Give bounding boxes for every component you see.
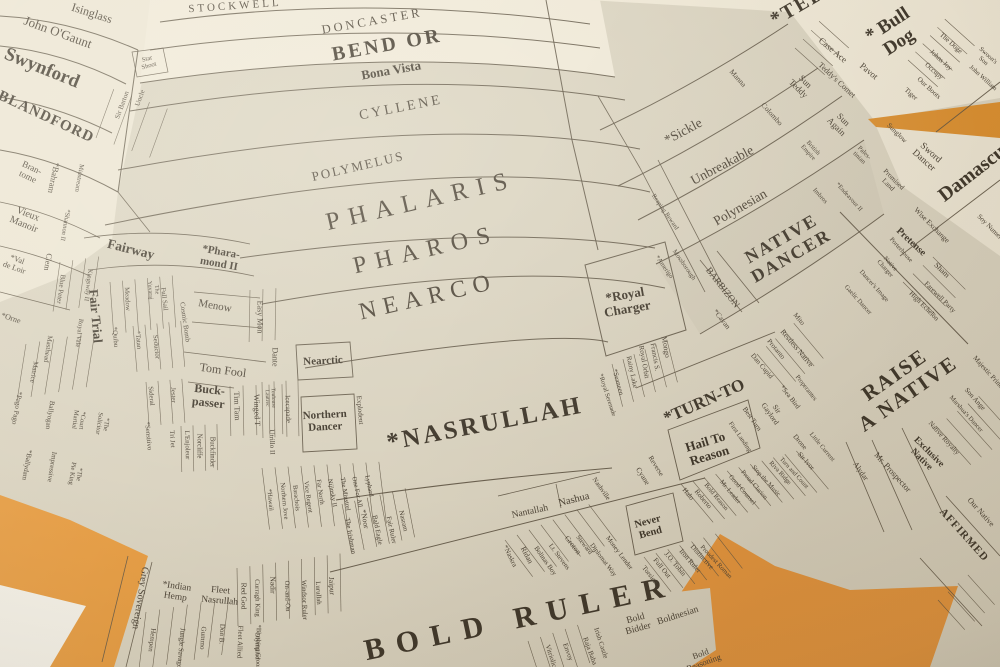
icecapade-text: Icecapade xyxy=(284,395,293,423)
on-and-on-label: On-and-On xyxy=(283,580,291,612)
dante-text: Dante xyxy=(271,347,280,367)
toulouse-lautrec-label: ToulouseLautrec xyxy=(264,388,277,409)
gummo-label: Gummo xyxy=(198,626,208,650)
jaipur-label: Jaipur xyxy=(327,577,337,596)
jaipur-text: Jaipur xyxy=(327,577,337,596)
don-b-text: Don B. xyxy=(217,624,226,645)
don-b-label: Don B. xyxy=(217,624,226,645)
jester-text: Jester xyxy=(169,387,177,404)
quibu-label: *Quibu xyxy=(111,327,119,348)
court-martial-text: *CourtMartial xyxy=(71,410,88,431)
pedigree-chart-photo: STOCKWELLDONCASTERBEND ORBona VistaCYLLE… xyxy=(0,0,1000,667)
northern-dancer-line-1: Dancer xyxy=(308,420,343,434)
fleet-allied-label: Fleet Allied xyxy=(235,625,244,659)
l-enjoleur-text: L'Enjoleur xyxy=(183,430,191,460)
nadir-label: Nadir xyxy=(268,576,277,594)
tri-jet-label: Tri Jet xyxy=(168,430,176,448)
pedigree-chart-svg: STOCKWELLDONCASTERBEND ORBona VistaCYLLE… xyxy=(0,0,1000,667)
windsor-ruler-label: Windsor Ruler xyxy=(300,580,308,621)
red-god-text: Red God xyxy=(240,583,249,610)
toulouse-lautrec-text: ToulouseLautrec xyxy=(264,388,277,409)
toulouse-lautrec-line-1: Lautrec xyxy=(264,390,271,408)
tri-jet-text: Tri Jet xyxy=(168,430,176,448)
utrillo-ii-label: Utrillo II xyxy=(268,429,277,455)
nearctic-label: Nearctic xyxy=(303,354,343,368)
curragh-king-label: Curragh King xyxy=(253,579,261,617)
gummo-text: Gummo xyxy=(198,626,208,650)
norcliffe-text: Norcliffe xyxy=(196,434,203,459)
jester-label: Jester xyxy=(169,387,177,404)
l-enjoleur-label: L'Enjoleur xyxy=(183,430,191,460)
tim-tam-text: Tim Tam xyxy=(232,391,242,421)
quibu-text: *Quibu xyxy=(111,327,119,348)
utrillo-ii-text: Utrillo II xyxy=(268,429,277,455)
olympiad-label: Olympiad xyxy=(253,632,260,660)
norcliffe-label: Norcliffe xyxy=(196,434,203,459)
buck-passer-label: Buck-passer xyxy=(191,381,227,412)
winged-t-text: Winged T xyxy=(252,394,262,426)
meadow-label: Meadow xyxy=(123,287,131,311)
buckfinder-text: Buckfinder xyxy=(209,437,216,468)
lurullah-label: Lurullah xyxy=(314,581,322,605)
buck-passer-text: Buck-passer xyxy=(191,381,227,412)
icecapade-label: Icecapade xyxy=(284,395,293,423)
on-and-on-text: On-and-On xyxy=(283,580,291,612)
buckfinder-label: Buckfinder xyxy=(209,437,216,468)
northern-dancer-label: NorthernDancer xyxy=(302,408,347,434)
fleet-allied-text: Fleet Allied xyxy=(235,625,244,659)
tim-tam-label: Tim Tam xyxy=(232,391,242,421)
nearctic-text: Nearctic xyxy=(303,354,343,368)
olympiad-text: Olympiad xyxy=(253,632,260,660)
windsor-ruler-text: Windsor Ruler xyxy=(300,580,308,621)
northern-dancer-text: NorthernDancer xyxy=(302,408,347,434)
court-martial-label: *CourtMartial xyxy=(71,410,88,431)
easy-mon-text: Easy Mon xyxy=(256,301,265,334)
meadow-text: Meadow xyxy=(123,287,131,311)
curragh-king-text: Curragh King xyxy=(253,579,261,617)
winged-t-label: Winged T xyxy=(252,394,262,426)
lurullah-text: Lurullah xyxy=(314,581,322,605)
nadir-text: Nadir xyxy=(268,576,277,594)
easy-mon-label: Easy Mon xyxy=(256,301,265,334)
red-god-label: Red God xyxy=(240,583,249,610)
dante-label: Dante xyxy=(271,347,280,367)
